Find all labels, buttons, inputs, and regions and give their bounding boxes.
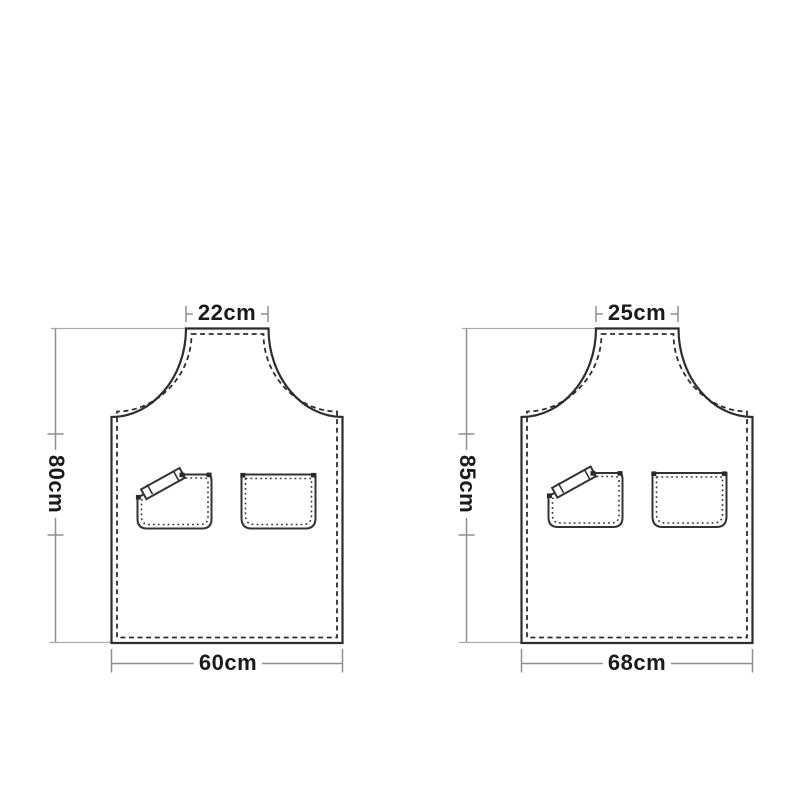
apron-size-diagram: 22cm 80cm 60cm 25cm 85cm 68cm — [0, 0, 800, 800]
small-neck-width-label: 22cm — [193, 300, 261, 326]
large-apron-group — [459, 306, 753, 673]
small-apron-group — [48, 306, 343, 673]
small-height-label: 80cm — [43, 450, 69, 518]
large-height-label: 85cm — [454, 450, 480, 518]
small-bottom-width-label: 60cm — [194, 650, 262, 676]
large-neck-width-label: 25cm — [603, 300, 671, 326]
diagram-drawing — [0, 0, 800, 800]
large-bottom-width-label: 68cm — [603, 650, 671, 676]
